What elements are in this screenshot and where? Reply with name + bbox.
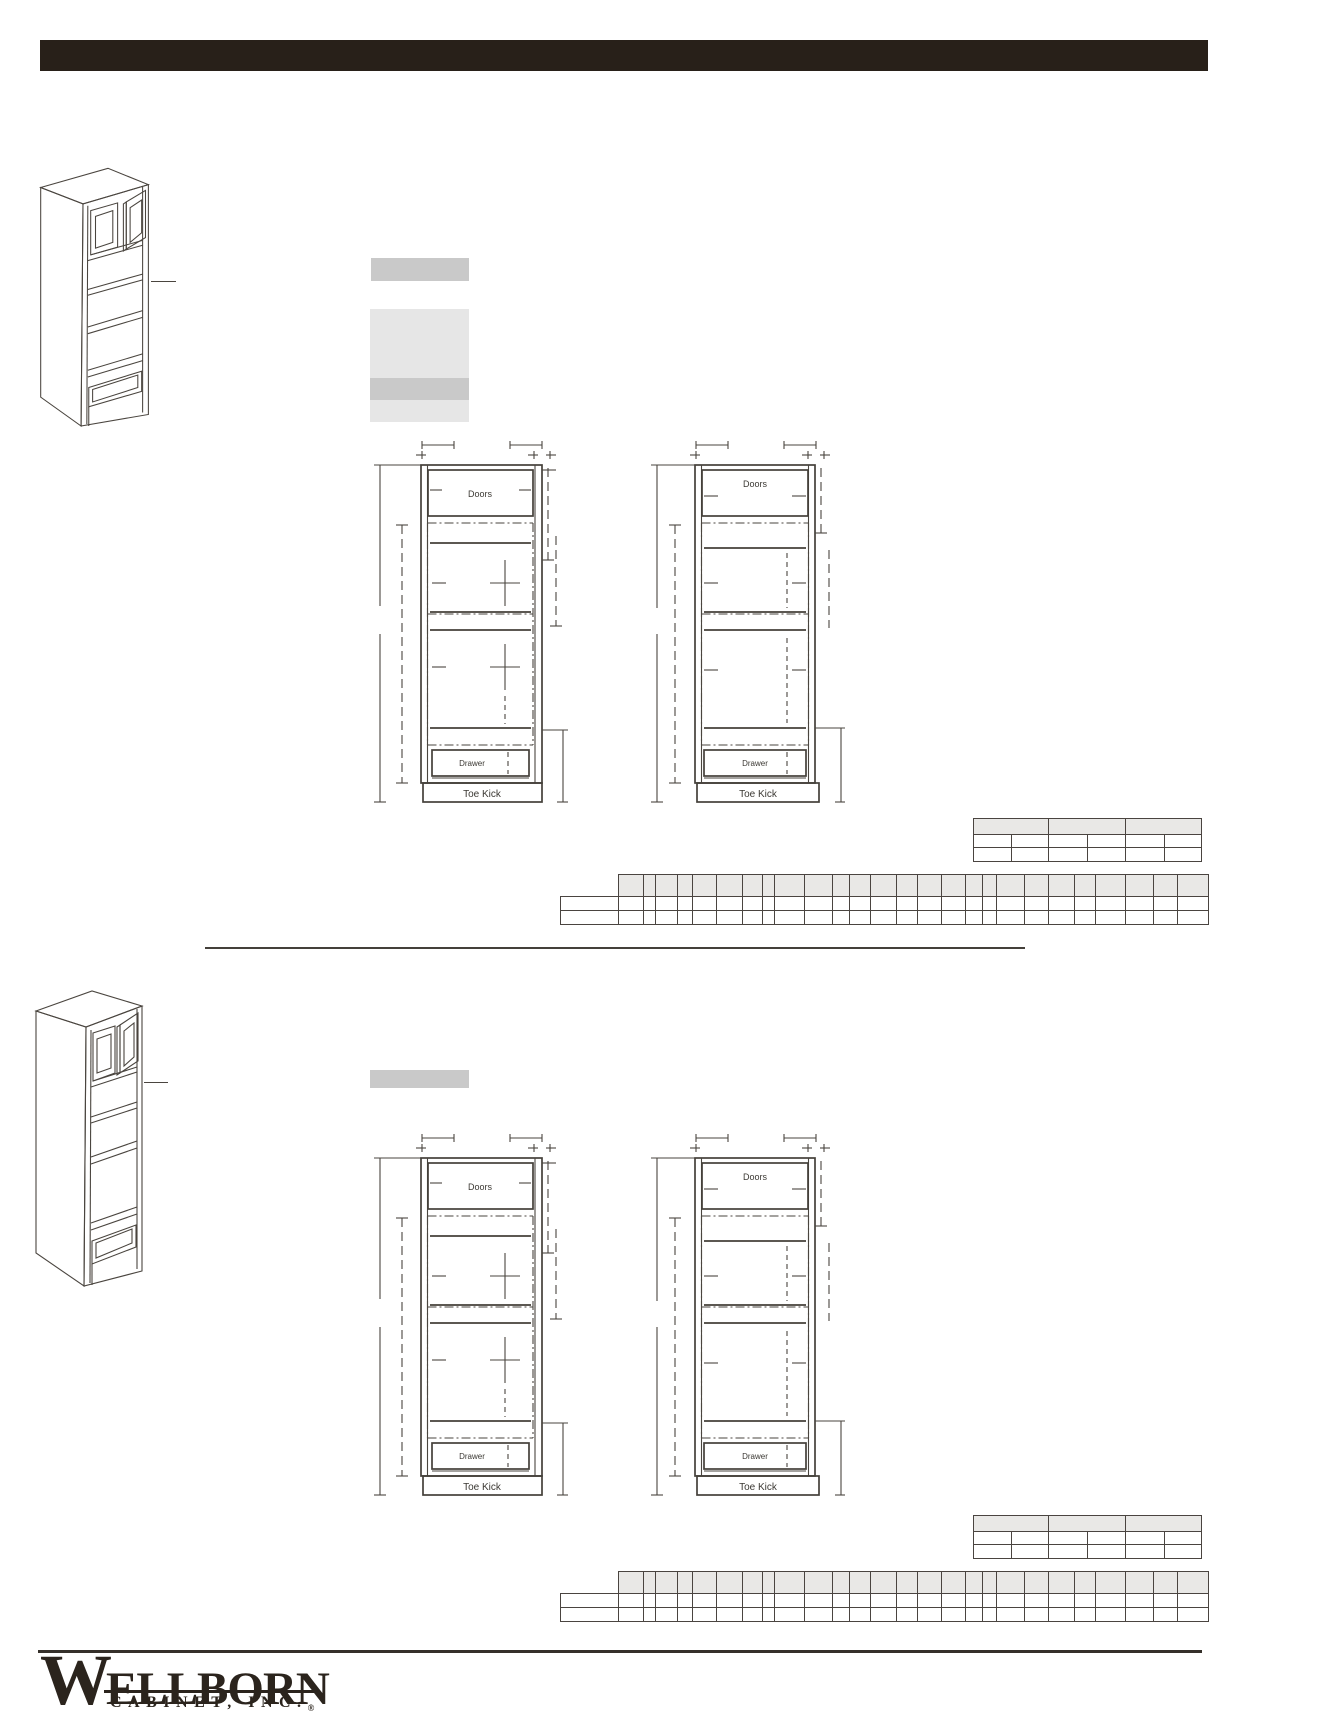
table-cell xyxy=(833,1572,850,1594)
table-cell xyxy=(1075,911,1096,925)
table-cell xyxy=(656,875,678,897)
table-cell xyxy=(805,911,833,925)
table-cell xyxy=(1025,1594,1049,1608)
table-cell xyxy=(1178,875,1209,897)
table-cell xyxy=(1154,875,1178,897)
table-cell xyxy=(743,1572,763,1594)
table-cell xyxy=(1096,1572,1126,1594)
table-cell xyxy=(942,1572,966,1594)
table-cell xyxy=(644,1572,656,1594)
table-cell xyxy=(850,1594,871,1608)
leader-line xyxy=(151,281,176,282)
table-cell xyxy=(775,1572,805,1594)
redacted-text-block xyxy=(370,1070,469,1088)
section-divider xyxy=(205,947,1025,949)
table-cell xyxy=(656,1594,678,1608)
table-cell xyxy=(1126,835,1165,848)
table-cell xyxy=(833,875,850,897)
table-cell xyxy=(942,897,966,911)
table-cell xyxy=(850,875,871,897)
table-cell xyxy=(974,1532,1012,1545)
table-cell xyxy=(1178,897,1209,911)
table-cell xyxy=(644,875,656,897)
table-cell xyxy=(693,897,717,911)
table-cell xyxy=(871,897,897,911)
table-cell xyxy=(983,911,997,925)
table-cell xyxy=(983,1572,997,1594)
table-cell xyxy=(644,1594,656,1608)
table-cell xyxy=(619,1572,644,1594)
table-cell xyxy=(619,875,644,897)
table-cell xyxy=(763,1594,775,1608)
table-cell xyxy=(833,911,850,925)
redacted-text-block xyxy=(370,400,469,422)
table-cell xyxy=(743,897,763,911)
table-cell xyxy=(1088,1545,1126,1559)
table-cell xyxy=(678,1594,693,1608)
table-cell xyxy=(1178,911,1209,925)
cabinet-front-elevation-left xyxy=(360,1131,570,1498)
table-cell xyxy=(1075,1572,1096,1594)
table-cell xyxy=(974,848,1012,862)
page-header-bar xyxy=(40,40,1208,71)
table-cell xyxy=(805,1594,833,1608)
table-cell xyxy=(1025,1572,1049,1594)
table-cell xyxy=(1165,1545,1202,1559)
table-cell xyxy=(561,1594,619,1608)
table-cell xyxy=(1075,1608,1096,1622)
table-cell xyxy=(693,1608,717,1622)
table-cell xyxy=(1126,1608,1154,1622)
table-cell xyxy=(775,1608,805,1622)
table-cell xyxy=(644,1608,656,1622)
table-cell xyxy=(1178,1594,1209,1608)
table-cell xyxy=(1025,875,1049,897)
table-cell xyxy=(1025,897,1049,911)
table-cell xyxy=(775,875,805,897)
table-cell xyxy=(743,1594,763,1608)
table-cell xyxy=(619,1608,644,1622)
table-cell xyxy=(1012,848,1049,862)
table-cell xyxy=(1012,1545,1049,1559)
table-cell xyxy=(918,911,942,925)
table-cell xyxy=(966,1608,983,1622)
table-cell xyxy=(1075,1594,1096,1608)
table-cell xyxy=(1049,835,1088,848)
table-cell xyxy=(619,911,644,925)
logo-subtitle: CABINET, INC.® xyxy=(110,1694,314,1713)
table-cell xyxy=(717,875,743,897)
table-cell xyxy=(1126,897,1154,911)
table-cell xyxy=(1049,1594,1075,1608)
table-cell xyxy=(1012,1532,1049,1545)
table-cell xyxy=(1126,1532,1165,1545)
table-cell xyxy=(1012,835,1049,848)
table-cell xyxy=(983,1594,997,1608)
table-cell xyxy=(974,1545,1012,1559)
registered-trademark-icon: ® xyxy=(308,1703,315,1713)
table-cell xyxy=(805,1608,833,1622)
table-cell xyxy=(997,1572,1025,1594)
logo-underline xyxy=(104,1690,316,1693)
table-cell xyxy=(1126,911,1154,925)
table-cell xyxy=(717,1572,743,1594)
logo-initial: W xyxy=(40,1640,110,1720)
table-cell xyxy=(678,1608,693,1622)
table-cell xyxy=(743,1608,763,1622)
table-cell xyxy=(871,1608,897,1622)
table-cell xyxy=(997,911,1025,925)
table-cell xyxy=(897,875,918,897)
table-cell xyxy=(717,1608,743,1622)
table-cell xyxy=(561,1572,619,1594)
table-cell xyxy=(1049,1516,1126,1532)
wellborn-logo: WELLBORN CABINET, INC.® xyxy=(40,1653,360,1723)
table-cell xyxy=(717,911,743,925)
cabinet-front-elevation-left xyxy=(360,438,570,805)
table-cell xyxy=(918,1594,942,1608)
table-cell xyxy=(871,1594,897,1608)
cabinet-front-elevation-right xyxy=(645,1131,845,1498)
table-cell xyxy=(983,1608,997,1622)
table-cell xyxy=(897,911,918,925)
table-cell xyxy=(983,875,997,897)
specification-table xyxy=(560,1571,1209,1622)
table-cell xyxy=(1126,1572,1154,1594)
catalog-page: WELLBORN CABINET, INC.® xyxy=(0,0,1338,1731)
table-cell xyxy=(1178,1572,1209,1594)
table-cell xyxy=(656,1572,678,1594)
redacted-text-block xyxy=(370,309,469,378)
dimension-table xyxy=(973,818,1202,862)
table-cell xyxy=(693,875,717,897)
table-cell xyxy=(1088,848,1126,862)
table-cell xyxy=(942,1608,966,1622)
table-cell xyxy=(871,911,897,925)
table-cell xyxy=(1096,897,1126,911)
table-cell xyxy=(763,897,775,911)
redacted-text-block xyxy=(370,378,469,400)
table-cell xyxy=(942,875,966,897)
table-cell xyxy=(1049,1532,1088,1545)
redacted-text-block xyxy=(371,258,469,281)
table-cell xyxy=(656,1608,678,1622)
table-cell xyxy=(775,911,805,925)
table-cell xyxy=(763,1572,775,1594)
table-cell xyxy=(918,875,942,897)
table-cell xyxy=(1088,835,1126,848)
table-cell xyxy=(644,911,656,925)
table-cell xyxy=(1049,1608,1075,1622)
table-cell xyxy=(833,1608,850,1622)
table-cell xyxy=(763,1608,775,1622)
table-cell xyxy=(871,1572,897,1594)
table-cell xyxy=(942,911,966,925)
table-cell xyxy=(1049,875,1075,897)
table-cell xyxy=(656,911,678,925)
table-cell xyxy=(997,875,1025,897)
table-cell xyxy=(974,819,1049,835)
table-cell xyxy=(897,1594,918,1608)
table-cell xyxy=(805,897,833,911)
table-cell xyxy=(1096,875,1126,897)
table-cell xyxy=(1049,897,1075,911)
table-cell xyxy=(833,897,850,911)
table-cell xyxy=(974,835,1012,848)
table-cell xyxy=(678,1572,693,1594)
table-cell xyxy=(1088,1532,1126,1545)
table-cell xyxy=(717,1594,743,1608)
table-cell xyxy=(1154,1572,1178,1594)
table-cell xyxy=(1075,875,1096,897)
dimension-table xyxy=(973,1515,1202,1559)
table-cell xyxy=(1154,1608,1178,1622)
table-cell xyxy=(693,1594,717,1608)
table-cell xyxy=(1096,911,1126,925)
table-cell xyxy=(743,911,763,925)
table-cell xyxy=(850,1572,871,1594)
table-cell xyxy=(850,897,871,911)
table-cell xyxy=(561,875,619,897)
table-cell xyxy=(1049,1572,1075,1594)
table-cell xyxy=(678,875,693,897)
table-cell xyxy=(918,897,942,911)
table-cell xyxy=(966,1594,983,1608)
table-cell xyxy=(897,897,918,911)
table-cell xyxy=(966,911,983,925)
table-cell xyxy=(1126,1594,1154,1608)
table-cell xyxy=(763,911,775,925)
table-cell xyxy=(966,1572,983,1594)
table-cell xyxy=(1049,911,1075,925)
table-cell xyxy=(1025,1608,1049,1622)
table-cell xyxy=(850,1608,871,1622)
table-cell xyxy=(763,875,775,897)
table-cell xyxy=(1154,1594,1178,1608)
table-cell xyxy=(850,911,871,925)
table-cell xyxy=(805,875,833,897)
table-cell xyxy=(775,897,805,911)
table-cell xyxy=(656,897,678,911)
table-cell xyxy=(983,897,997,911)
logo-subtitle-text: CABINET, INC. xyxy=(110,1694,308,1711)
table-cell xyxy=(1126,1545,1165,1559)
leader-line xyxy=(144,1082,168,1083)
table-cell xyxy=(561,911,619,925)
table-cell xyxy=(1025,911,1049,925)
table-cell xyxy=(1096,1608,1126,1622)
table-cell xyxy=(1049,819,1126,835)
table-cell xyxy=(997,897,1025,911)
table-cell xyxy=(1154,911,1178,925)
table-cell xyxy=(1178,1608,1209,1622)
table-cell xyxy=(644,897,656,911)
table-cell xyxy=(693,911,717,925)
table-cell xyxy=(997,1608,1025,1622)
table-cell xyxy=(1126,848,1165,862)
table-cell xyxy=(1165,848,1202,862)
table-cell xyxy=(561,897,619,911)
table-cell xyxy=(743,875,763,897)
table-cell xyxy=(1165,1532,1202,1545)
table-cell xyxy=(966,897,983,911)
table-cell xyxy=(1096,1594,1126,1608)
table-cell xyxy=(619,897,644,911)
table-cell xyxy=(775,1594,805,1608)
cabinet-front-elevation-right xyxy=(645,438,845,805)
table-cell xyxy=(678,911,693,925)
table-cell xyxy=(897,1572,918,1594)
table-cell xyxy=(997,1594,1025,1608)
oven-cabinet-isometric-narrow xyxy=(30,973,150,1288)
table-cell xyxy=(974,1516,1049,1532)
table-cell xyxy=(833,1594,850,1608)
table-cell xyxy=(693,1572,717,1594)
table-cell xyxy=(918,1608,942,1622)
table-cell xyxy=(1075,897,1096,911)
oven-cabinet-isometric-wide xyxy=(33,145,158,432)
table-cell xyxy=(1049,1545,1088,1559)
table-cell xyxy=(619,1594,644,1608)
table-cell xyxy=(966,875,983,897)
table-cell xyxy=(1126,819,1202,835)
table-cell xyxy=(717,897,743,911)
table-cell xyxy=(1165,835,1202,848)
table-cell xyxy=(1126,875,1154,897)
table-cell xyxy=(871,875,897,897)
table-cell xyxy=(805,1572,833,1594)
table-cell xyxy=(942,1594,966,1608)
table-cell xyxy=(897,1608,918,1622)
table-cell xyxy=(1049,848,1088,862)
table-cell xyxy=(918,1572,942,1594)
table-cell xyxy=(1126,1516,1202,1532)
table-cell xyxy=(678,897,693,911)
table-cell xyxy=(561,1608,619,1622)
specification-table xyxy=(560,874,1209,925)
table-cell xyxy=(1154,897,1178,911)
